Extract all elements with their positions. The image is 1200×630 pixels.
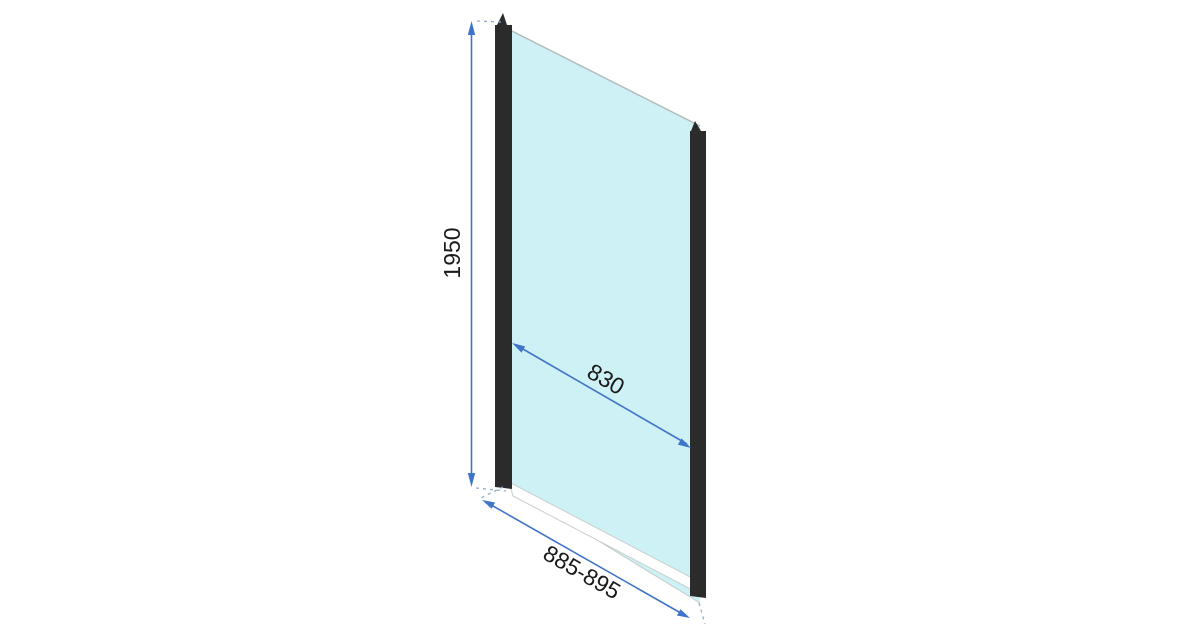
right-wall-profile <box>690 131 706 598</box>
left-wall-profile <box>495 25 512 489</box>
height-dimension-label: 1950 <box>439 227 465 278</box>
technical-drawing: 1950 830 885-895 <box>0 0 1200 630</box>
technical-drawing-page: 1950 830 885-895 <box>0 0 1200 630</box>
